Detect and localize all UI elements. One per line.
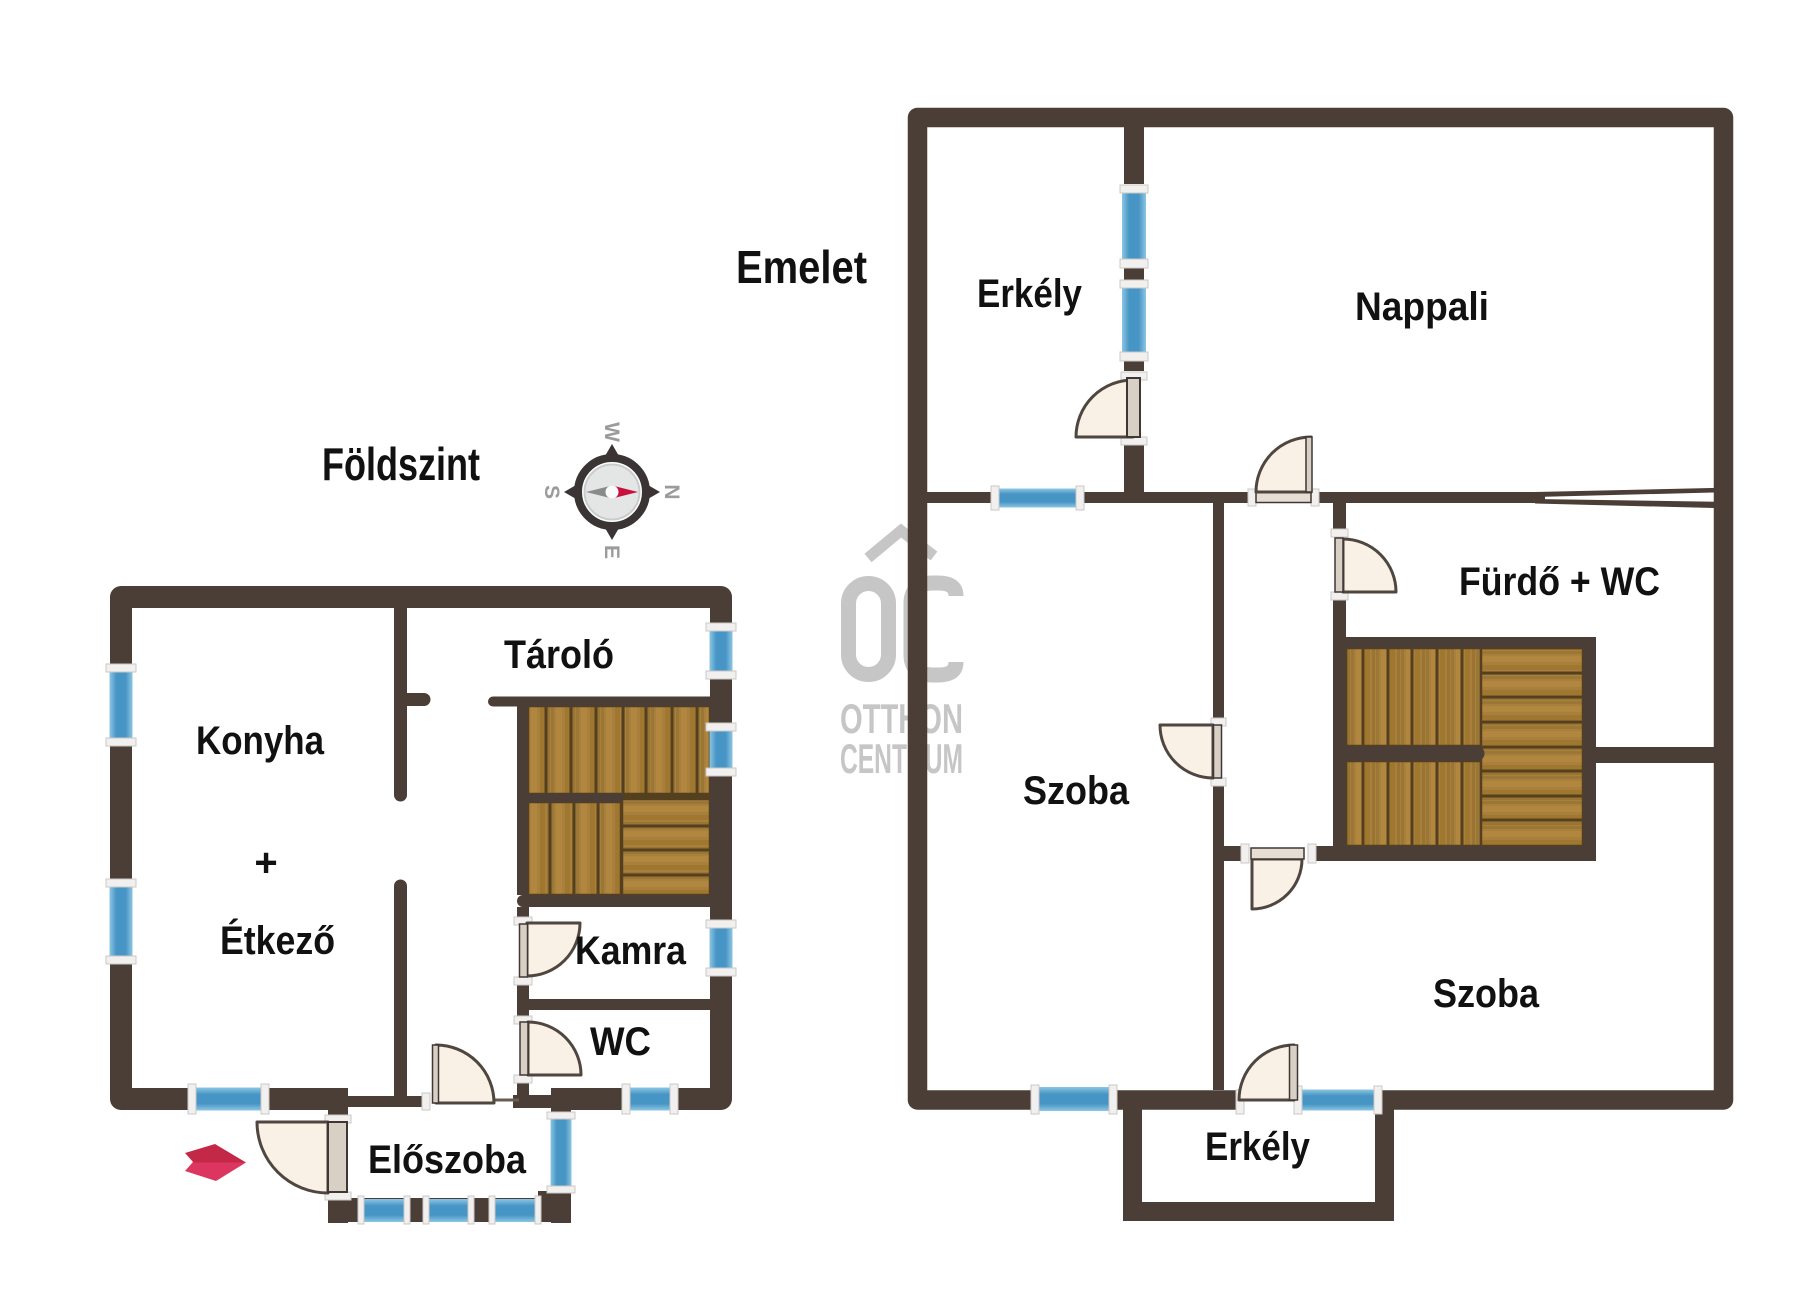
svg-text:Szoba: Szoba — [1023, 769, 1130, 813]
svg-text:WC: WC — [590, 1020, 651, 1064]
svg-text:S: S — [540, 485, 563, 499]
svg-text:E: E — [600, 545, 623, 559]
svg-text:W: W — [600, 422, 623, 442]
svg-text:Földszint: Földszint — [322, 438, 480, 490]
svg-text:Előszoba: Előszoba — [368, 1138, 527, 1182]
svg-text:Szoba: Szoba — [1433, 972, 1540, 1016]
svg-text:+: + — [254, 841, 277, 885]
svg-text:Emelet: Emelet — [736, 241, 867, 293]
svg-text:Tároló: Tároló — [504, 633, 614, 677]
svg-text:Konyha: Konyha — [196, 719, 325, 763]
svg-text:Erkély: Erkély — [977, 272, 1083, 316]
svg-text:Nappali: Nappali — [1355, 285, 1489, 329]
svg-text:Fürdő + WC: Fürdő + WC — [1459, 560, 1660, 604]
svg-text:Erkély: Erkély — [1205, 1125, 1311, 1169]
svg-text:Étkező: Étkező — [220, 918, 335, 963]
svg-text:CENTRUM: CENTRUM — [840, 735, 963, 782]
svg-text:Kamra: Kamra — [575, 929, 687, 973]
svg-text:N: N — [660, 484, 683, 499]
